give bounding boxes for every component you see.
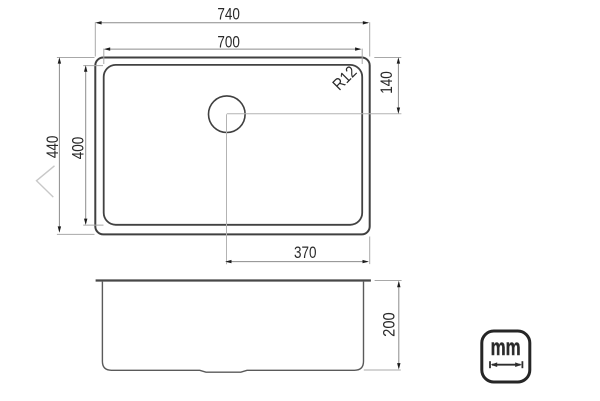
svg-text:740: 740 bbox=[217, 6, 240, 24]
svg-text:440: 440 bbox=[44, 136, 62, 159]
svg-text:370: 370 bbox=[294, 244, 317, 262]
svg-text:mm: mm bbox=[491, 334, 521, 360]
svg-text:400: 400 bbox=[70, 137, 88, 160]
svg-text:200: 200 bbox=[380, 312, 398, 337]
svg-text:700: 700 bbox=[217, 34, 240, 52]
svg-text:140: 140 bbox=[378, 71, 396, 94]
